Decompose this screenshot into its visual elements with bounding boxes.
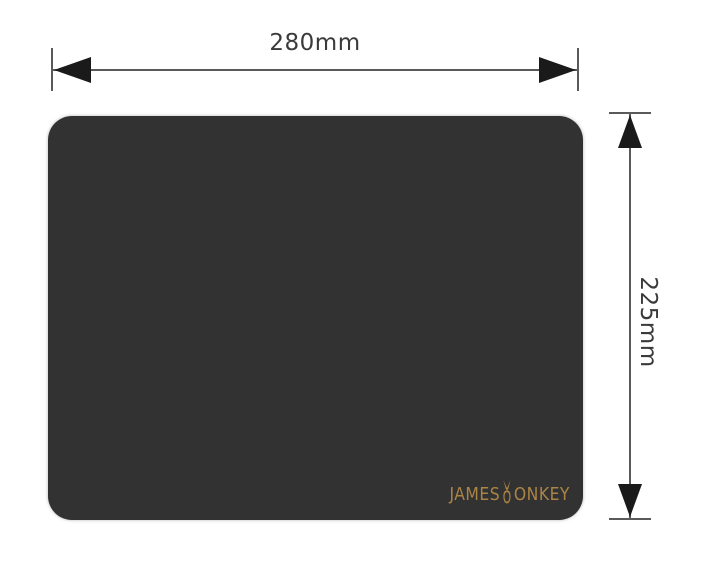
donkey-head-icon: [501, 480, 513, 505]
arrow-left-icon: [54, 57, 91, 83]
height-dimension-line: [629, 113, 631, 519]
arrow-up-icon: [618, 115, 642, 148]
arrow-right-icon: [539, 57, 576, 83]
brand-text-prefix: JAMES: [450, 486, 501, 504]
brand-text-suffix: ONKEY: [514, 486, 570, 504]
height-dimension-bottom-tick: [609, 518, 651, 520]
height-dimension-top-tick: [609, 112, 651, 114]
width-dimension-left-tick: [51, 48, 53, 91]
product-dimension-diagram: 280mm 225mm JAMES ONKEY: [0, 0, 728, 576]
width-dimension-right-tick: [577, 48, 579, 91]
brand-logo: JAMES ONKEY: [450, 480, 570, 504]
mousepad: JAMES ONKEY: [48, 116, 583, 520]
width-dimension-label: 280mm: [52, 30, 578, 56]
arrow-down-icon: [618, 484, 642, 517]
height-dimension-label: 225mm: [635, 276, 661, 367]
width-dimension-line: [52, 69, 578, 71]
